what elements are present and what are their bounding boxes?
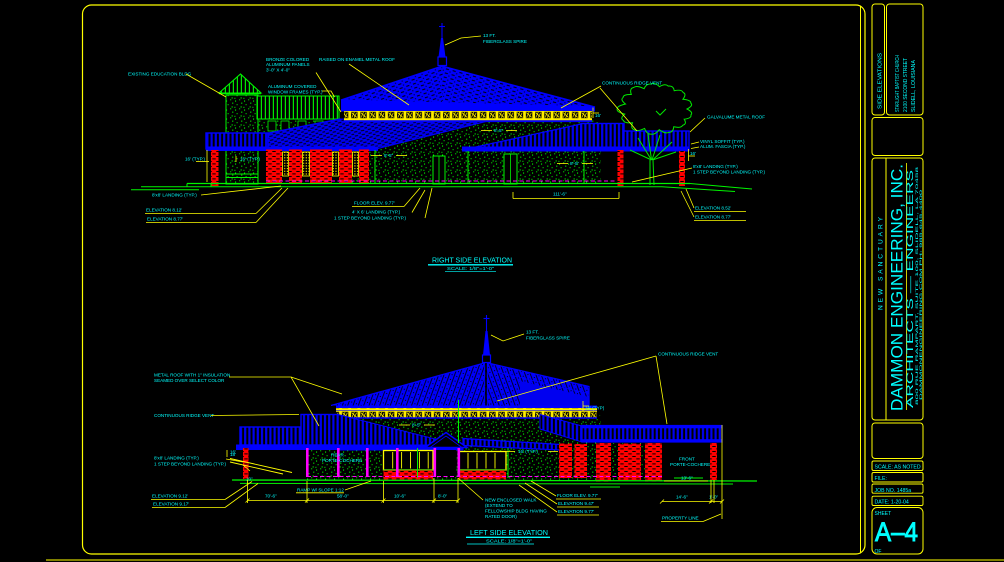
svg-text:ELEVATION 8.52': ELEVATION 8.52': [695, 206, 731, 211]
svg-text:GALVALUME METAL ROOF: GALVALUME METAL ROOF: [707, 115, 765, 120]
svg-text:(EXTEND TO: (EXTEND TO: [485, 503, 513, 508]
svg-text:SCALE: 1/8"=1'-0": SCALE: 1/8"=1'-0": [447, 266, 494, 271]
svg-text:2100 SECOND STREET: 2100 SECOND STREET: [903, 57, 909, 112]
svg-text:16' (TYP.): 16' (TYP.): [185, 157, 205, 162]
svg-text:METAL ROOF WITH 1" INSULATION: METAL ROOF WITH 1" INSULATION: [154, 373, 230, 378]
svg-text:16': 16': [690, 151, 696, 156]
svg-text:FRONT: FRONT: [679, 457, 695, 462]
svg-text:DAMMONENGINEERING.COM PH: 985: DAMMONENGINEERING.COM PH: 985-645-4400: [919, 190, 923, 400]
svg-text:10'-6": 10'-6": [394, 494, 406, 499]
svg-text:16': 16': [595, 113, 601, 118]
svg-text:16' (TYP): 16' (TYP): [585, 406, 605, 411]
svg-text:A–4: A–4: [875, 517, 918, 547]
svg-text:FLOOR ELEV. 9.77': FLOOR ELEV. 9.77': [354, 201, 395, 206]
svg-text:1 STEP BEYOND LANDING (TYP.): 1 STEP BEYOND LANDING (TYP.): [693, 170, 766, 175]
svg-text:SCALE: 1/8"=1'-0": SCALE: 1/8"=1'-0": [486, 539, 532, 544]
svg-text:8'-5": 8'-5": [570, 161, 580, 166]
svg-text:STARLIGHT BAPTIST CHURCH: STARLIGHT BAPTIST CHURCH: [895, 55, 901, 112]
svg-text:SLIDELL, LOUISIANA: SLIDELL, LOUISIANA: [911, 60, 917, 112]
svg-text:13'-6": 13'-6": [681, 476, 693, 481]
svg-text:13 FT.: 13 FT.: [526, 330, 539, 335]
svg-text:CONTINUOUS RIDGE VENT: CONTINUOUS RIDGE VENT: [602, 81, 662, 86]
svg-text:EXISTING EDUCATION BLDG: EXISTING EDUCATION BLDG: [128, 72, 192, 77]
svg-text:PROPERTY LINE: PROPERTY LINE: [662, 516, 699, 521]
svg-text:REAR: REAR: [331, 453, 344, 458]
svg-text:JOB NO. 1485a: JOB NO. 1485a: [875, 488, 912, 494]
svg-text:SEAMED OVER SELECT COLOR: SEAMED OVER SELECT COLOR: [154, 378, 225, 383]
svg-text:ELEVATION 9.47': ELEVATION 9.47': [558, 501, 594, 506]
svg-text:SIDE ELEVATIONS: SIDE ELEVATIONS: [878, 53, 884, 109]
svg-text:DAMMON ENGINEERING, INC.: DAMMON ENGINEERING, INC.: [888, 164, 907, 411]
svg-text:RIGHT SIDE ELEVATION: RIGHT SIDE ELEVATION: [432, 256, 512, 265]
svg-text:3'-0" X 4'-0": 3'-0" X 4'-0": [266, 67, 290, 72]
svg-text:RATED DOOR): RATED DOOR): [485, 514, 517, 519]
svg-text:LEFT SIDE ELEVATION: LEFT SIDE ELEVATION: [470, 528, 548, 537]
svg-text:ELEVATION 9.12': ELEVATION 9.12': [152, 494, 188, 499]
svg-text:RAISED ON ENAMEL METAL ROOF: RAISED ON ENAMEL METAL ROOF: [319, 57, 395, 62]
svg-text:13 FT.: 13 FT.: [483, 33, 496, 38]
svg-text:111'-6": 111'-6": [553, 192, 567, 197]
svg-text:ALUMINUM COVERED: ALUMINUM COVERED: [268, 84, 317, 89]
svg-text:DATE: 1-20-04: DATE: 1-20-04: [875, 499, 909, 505]
svg-text:16': 16': [230, 450, 236, 455]
svg-text:WINDOW FRAMES (TYP.): WINDOW FRAMES (TYP.): [268, 89, 323, 94]
svg-text:ELEVATION 8.77': ELEVATION 8.77': [695, 215, 731, 220]
svg-text:8'-5": 8'-5": [494, 128, 504, 133]
svg-text:RAMP W/ SLOPE 1:12: RAMP W/ SLOPE 1:12: [297, 488, 344, 493]
svg-text:ELEVATION 8.77': ELEVATION 8.77': [147, 217, 183, 222]
svg-text:PORTE-COCHERE: PORTE-COCHERE: [670, 462, 710, 467]
svg-text:16' (TYP.): 16' (TYP.): [518, 449, 538, 454]
svg-text:8'-0": 8'-0": [438, 494, 448, 499]
svg-text:8'x8' LANDING (TYP.): 8'x8' LANDING (TYP.): [693, 164, 738, 169]
svg-text:1 STEP BEYOND LANDING (TYP.): 1 STEP BEYOND LANDING (TYP.): [334, 216, 407, 221]
svg-text:ELEVATION 8.12': ELEVATION 8.12': [146, 208, 182, 213]
svg-text:8'x8' LANDING (TYP.): 8'x8' LANDING (TYP.): [152, 193, 197, 198]
svg-text:SCALE: AS NOTED: SCALE: AS NOTED: [875, 464, 921, 470]
svg-text:FIBERGLASS SPIRE: FIBERGLASS SPIRE: [526, 336, 570, 341]
svg-text:ALUM. FASCIA (TYP.): ALUM. FASCIA (TYP.): [700, 144, 746, 149]
svg-text:FILE:: FILE:: [875, 476, 887, 482]
svg-text:10": 10": [246, 477, 253, 482]
svg-text:14'-6": 14'-6": [676, 495, 688, 500]
svg-text:PORTE-COCHERE: PORTE-COCHERE: [322, 458, 362, 463]
svg-text:8'-5": 8'-5": [412, 423, 422, 428]
svg-text:ELEVATION 9.17': ELEVATION 9.17': [153, 502, 189, 507]
svg-text:FIBERGLASS SPIRE: FIBERGLASS SPIRE: [483, 39, 527, 44]
svg-text:8'x8' LANDING (TYP.): 8'x8' LANDING (TYP.): [154, 456, 199, 461]
svg-text:OF: OF: [875, 549, 882, 555]
svg-text:58'-0": 58'-0": [337, 494, 349, 499]
svg-text:70'-6": 70'-6": [265, 494, 277, 499]
svg-text:8'-5": 8'-5": [384, 153, 394, 158]
svg-text:FELLOWSHIP BLDG HAVING: FELLOWSHIP BLDG HAVING: [485, 509, 547, 514]
svg-text:CONTINUOUS RIDGE VENT: CONTINUOUS RIDGE VENT: [658, 352, 718, 357]
svg-text:16' (TYP.): 16' (TYP.): [240, 157, 260, 162]
svg-text:CONTINUOUS RIDGE VENT: CONTINUOUS RIDGE VENT: [154, 413, 214, 418]
svg-text:1 STEP BEYOND LANDING (TYP.): 1 STEP BEYOND LANDING (TYP.): [154, 462, 227, 467]
svg-text:ELEVATION 9.77': ELEVATION 9.77': [558, 509, 594, 514]
svg-text:NEW ENCLOSED WALK: NEW ENCLOSED WALK: [485, 498, 537, 503]
svg-text:4' X 6' LANDING (TYP.): 4' X 6' LANDING (TYP.): [352, 210, 401, 215]
svg-text:FLOOR ELEV. 9.77': FLOOR ELEV. 9.77': [557, 493, 598, 498]
